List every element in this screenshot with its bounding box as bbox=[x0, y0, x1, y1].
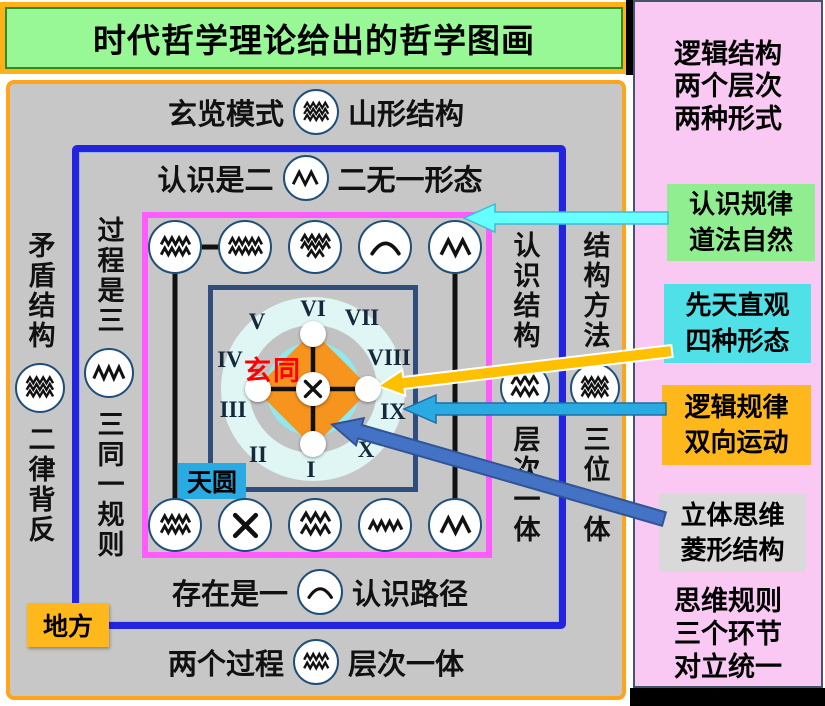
callout-cognition-law: 认识规律 道法自然 bbox=[667, 184, 815, 261]
node-dot-bottom bbox=[300, 431, 326, 457]
col-label-bottom: 层次一体 bbox=[506, 425, 545, 545]
numeral-1: I bbox=[307, 457, 316, 483]
heading-line: 逻辑结构 bbox=[635, 38, 821, 70]
row-renshi: 认识是二 二无一形态 bbox=[80, 152, 560, 204]
callout-logic-law: 逻辑规律 双向运动 bbox=[662, 385, 811, 465]
callout-line: 逻辑规律 bbox=[684, 390, 788, 425]
row-label-right: 二无一形态 bbox=[338, 157, 483, 199]
row-cunzai: 存在是一 认识路径 bbox=[80, 566, 560, 618]
callout-line: 四种形态 bbox=[685, 324, 789, 359]
row-label-left: 存在是一 bbox=[172, 571, 288, 613]
wave-circle-icon bbox=[84, 348, 134, 398]
col-label-top: 结构方法 bbox=[576, 231, 615, 351]
col-label-top: 认识结构 bbox=[506, 231, 545, 351]
column-renshi-jiegou: 认识结构 层次一体 bbox=[494, 150, 556, 626]
col-label-top: 矛盾结构 bbox=[21, 231, 60, 351]
bottom-row-circle-zig2-icon bbox=[428, 498, 482, 552]
bottom-row-circle-wave2deep-icon bbox=[288, 498, 342, 552]
top-row-circle-arc-icon bbox=[358, 220, 412, 274]
col-label-bottom: 二律背反 bbox=[21, 425, 60, 545]
callout-line: 立体思维 bbox=[680, 498, 784, 533]
column-maodun: 矛盾结构 二律背反 bbox=[12, 150, 68, 626]
top-row-circle-zig2-icon bbox=[428, 220, 482, 274]
wave-circle-icon bbox=[283, 155, 329, 201]
wave-circle-icon bbox=[500, 363, 550, 413]
numeral-6: VI bbox=[300, 296, 326, 322]
arc-circle-icon bbox=[297, 569, 343, 615]
wave-circle-icon bbox=[293, 89, 339, 135]
footer-line: 思维规则 bbox=[635, 585, 821, 618]
numeral-4: IV bbox=[217, 347, 243, 373]
node-dot-right bbox=[355, 376, 381, 402]
page-title: 时代哲学理论给出的哲学图画 bbox=[93, 14, 535, 62]
numeral-8: VIII bbox=[367, 345, 410, 371]
wave-circle-icon bbox=[293, 639, 339, 685]
wave-circle-icon bbox=[570, 363, 620, 413]
sidebar: 逻辑结构 两个层次 两种形式 认识规律 道法自然 先天直观 四种形态 逻辑规律 … bbox=[633, 0, 823, 688]
footer-line: 对立统一 bbox=[635, 651, 821, 684]
numeral-2: II bbox=[249, 442, 267, 468]
row-label-left: 两个过程 bbox=[168, 641, 284, 683]
bottom-row-circle-zig4small-icon bbox=[358, 498, 412, 552]
sidebar-heading: 逻辑结构 两个层次 两种形式 bbox=[635, 38, 821, 135]
sidebar-footer: 思维规则 三个环节 对立统一 bbox=[635, 585, 821, 684]
numeral-5: V bbox=[249, 309, 266, 335]
row-label-right: 山形结构 bbox=[348, 91, 464, 133]
bottom-bar bbox=[630, 688, 825, 706]
col-label-bottom: 三同一规则 bbox=[90, 410, 129, 560]
heading-line: 两个层次 bbox=[635, 70, 821, 102]
heading-line: 两种形式 bbox=[635, 103, 821, 135]
column-jiegou-fangfa: 结构方法 三位一体 bbox=[568, 150, 622, 626]
row-xuanlan: 玄览模式 山形结构 bbox=[6, 86, 626, 138]
top-row-circle-wave2wide-icon bbox=[218, 220, 272, 274]
callout-line: 先天直观 bbox=[685, 288, 789, 323]
wave-circle-icon bbox=[15, 363, 65, 413]
bottom-row-circle-cross-icon bbox=[218, 498, 272, 552]
column-guocheng: 过程是三 三同一规则 bbox=[80, 150, 138, 626]
callout-line: 菱形结构 bbox=[680, 533, 784, 568]
title-banner: 时代哲学理论给出的哲学图画 bbox=[0, 2, 628, 74]
col-label-bottom: 三位一体 bbox=[576, 425, 615, 545]
tag-heaven-round: 天圆 bbox=[178, 463, 246, 499]
numeral-7: VII bbox=[345, 305, 380, 331]
col-label-top: 过程是三 bbox=[90, 216, 129, 336]
callout-line: 认识规律 bbox=[689, 187, 793, 222]
callout-line: 双向运动 bbox=[684, 425, 788, 460]
node-dot-top bbox=[300, 321, 326, 347]
callout-solid-thinking: 立体思维 菱形结构 bbox=[659, 494, 806, 572]
callout-line: 道法自然 bbox=[689, 223, 793, 258]
row-label-left: 玄览模式 bbox=[168, 91, 284, 133]
numeral-10: X bbox=[358, 437, 375, 463]
top-row-circle-wave2-icon bbox=[148, 220, 202, 274]
bottom-row-circle-wave2-icon bbox=[148, 498, 202, 552]
top-row-circle-wave3dense-icon bbox=[288, 220, 342, 274]
footer-line: 三个环节 bbox=[635, 618, 821, 651]
row-label-left: 认识是二 bbox=[157, 157, 273, 199]
numeral-3: III bbox=[220, 397, 247, 423]
row-label-right: 层次一体 bbox=[348, 641, 464, 683]
row-liangge: 两个过程 层次一体 bbox=[6, 634, 626, 690]
numeral-9: IX bbox=[380, 399, 406, 425]
row-label-right: 认识路径 bbox=[352, 571, 468, 613]
callout-innate-intuition: 先天直观 四种形态 bbox=[664, 284, 811, 363]
xuantong-label: 玄同 bbox=[244, 349, 302, 388]
philosophy-diagram: 时代哲学理论给出的哲学图画 逻辑结构 两个层次 两种形式 认识规律 道法自然 先… bbox=[0, 0, 825, 706]
